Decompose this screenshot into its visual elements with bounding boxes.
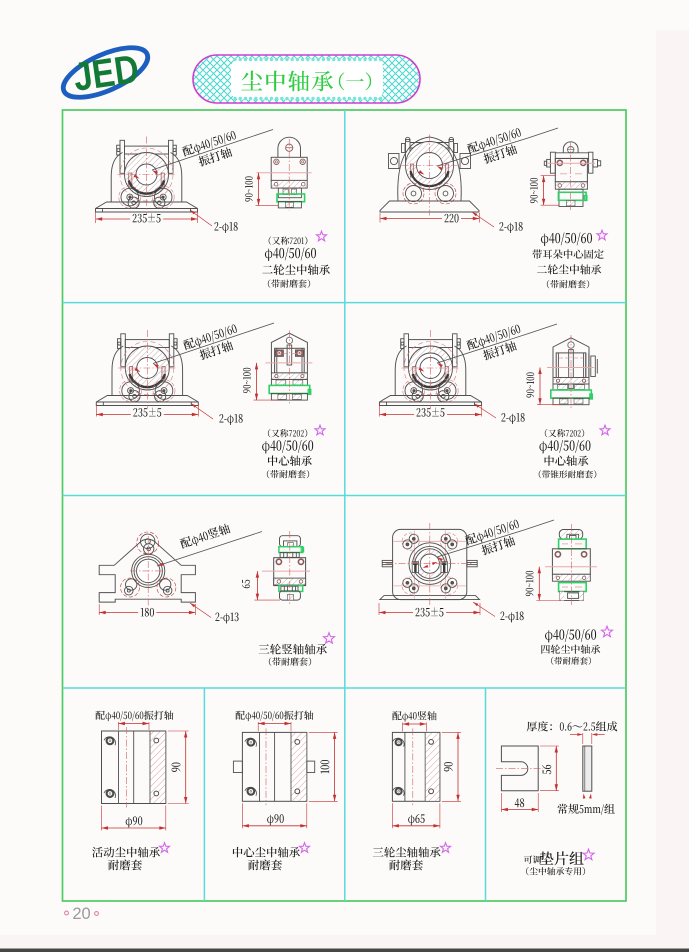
- svg-text:20: 20: [72, 905, 90, 923]
- svg-text:JED: JED: [71, 46, 142, 99]
